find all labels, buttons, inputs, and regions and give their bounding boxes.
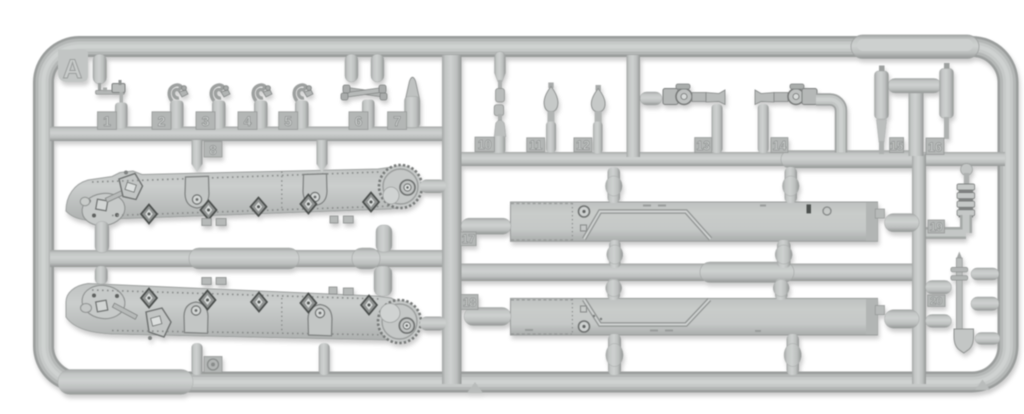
svg-text:17: 17 — [462, 232, 476, 246]
svg-text:5: 5 — [284, 113, 292, 129]
svg-text:8: 8 — [209, 143, 216, 158]
svg-text:6: 6 — [355, 113, 363, 129]
svg-text:16: 16 — [928, 140, 942, 154]
svg-text:18: 18 — [463, 296, 477, 310]
svg-text:19: 19 — [930, 222, 943, 234]
svg-text:4: 4 — [244, 113, 252, 129]
svg-text:11: 11 — [529, 138, 542, 152]
svg-text:A: A — [63, 54, 83, 84]
svg-text:7: 7 — [393, 113, 401, 129]
svg-text:15: 15 — [890, 139, 904, 153]
svg-text:20: 20 — [930, 296, 942, 308]
svg-text:1: 1 — [103, 113, 111, 129]
svg-text:12: 12 — [576, 138, 590, 152]
svg-text:14: 14 — [772, 139, 786, 153]
svg-text:13: 13 — [696, 139, 710, 153]
svg-text:10: 10 — [478, 138, 492, 152]
svg-text:2: 2 — [158, 113, 166, 129]
svg-text:3: 3 — [202, 113, 210, 129]
